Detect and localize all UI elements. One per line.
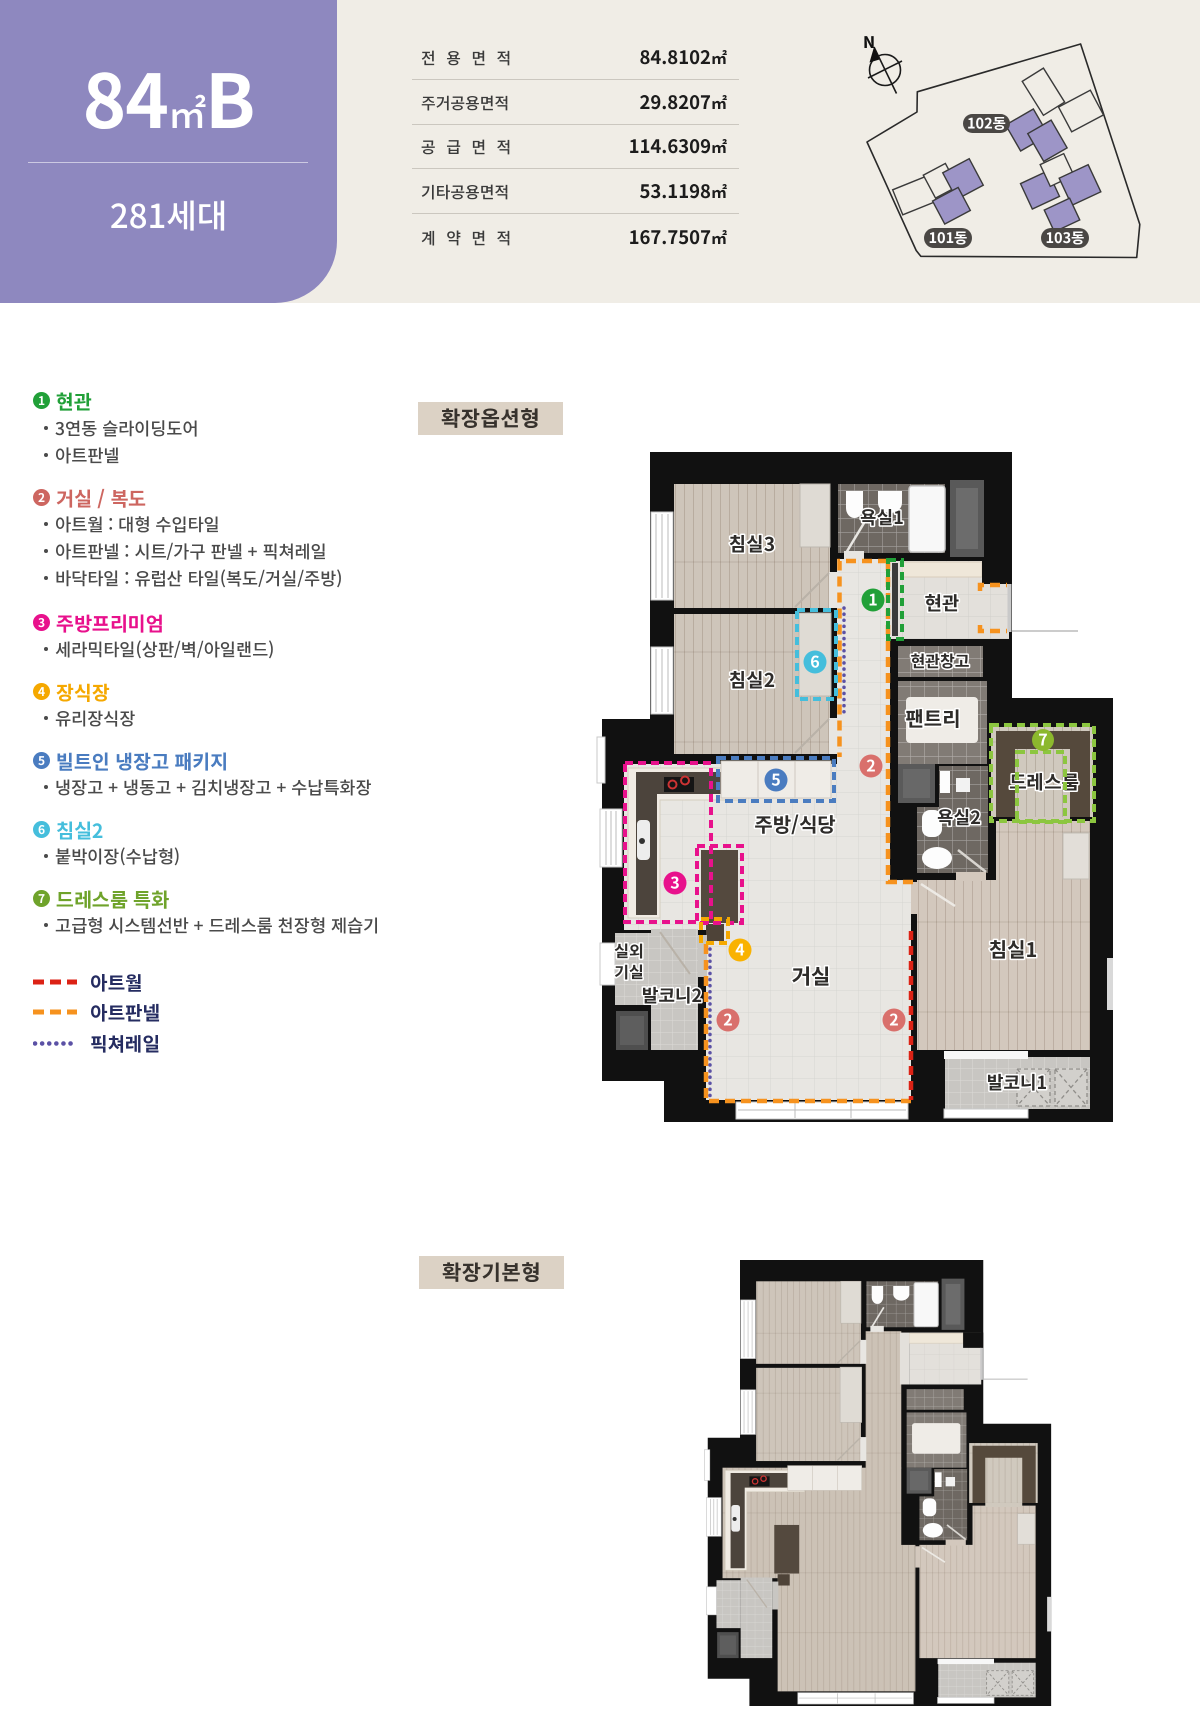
svg-text:103동: 103동 — [1045, 227, 1085, 248]
svg-text:현관창고: 현관창고 — [911, 648, 970, 672]
svg-text:2: 2 — [866, 753, 875, 777]
svg-text:현관: 현관 — [925, 589, 960, 616]
svg-text:발코니1: 발코니1 — [987, 1069, 1047, 1095]
svg-text:발코니2: 발코니2 — [642, 982, 702, 1008]
svg-text:드레스룸: 드레스룸 — [1009, 768, 1079, 795]
svg-text:침실3: 침실3 — [729, 530, 775, 557]
svg-text:4: 4 — [735, 937, 744, 961]
svg-text:6: 6 — [810, 649, 819, 673]
svg-text:침실2: 침실2 — [729, 666, 775, 693]
svg-text:2: 2 — [889, 1007, 898, 1031]
svg-text:3: 3 — [670, 870, 679, 894]
svg-text:거실: 거실 — [792, 961, 831, 991]
svg-text:102동: 102동 — [967, 113, 1007, 134]
svg-text:욕실1: 욕실1 — [860, 504, 904, 530]
svg-text:팬트리: 팬트리 — [905, 703, 960, 732]
svg-text:2: 2 — [723, 1007, 732, 1031]
svg-text:101동: 101동 — [928, 227, 968, 248]
svg-text:침실1: 침실1 — [989, 934, 1038, 963]
svg-text:7: 7 — [1038, 727, 1047, 751]
svg-text:5: 5 — [771, 767, 780, 791]
svg-text:주방/식당: 주방/식당 — [754, 809, 835, 838]
svg-text:욕실2: 욕실2 — [937, 804, 981, 830]
svg-text:1: 1 — [868, 587, 877, 611]
svg-text:N: N — [863, 29, 875, 53]
svg-text:기실: 기실 — [614, 959, 643, 983]
